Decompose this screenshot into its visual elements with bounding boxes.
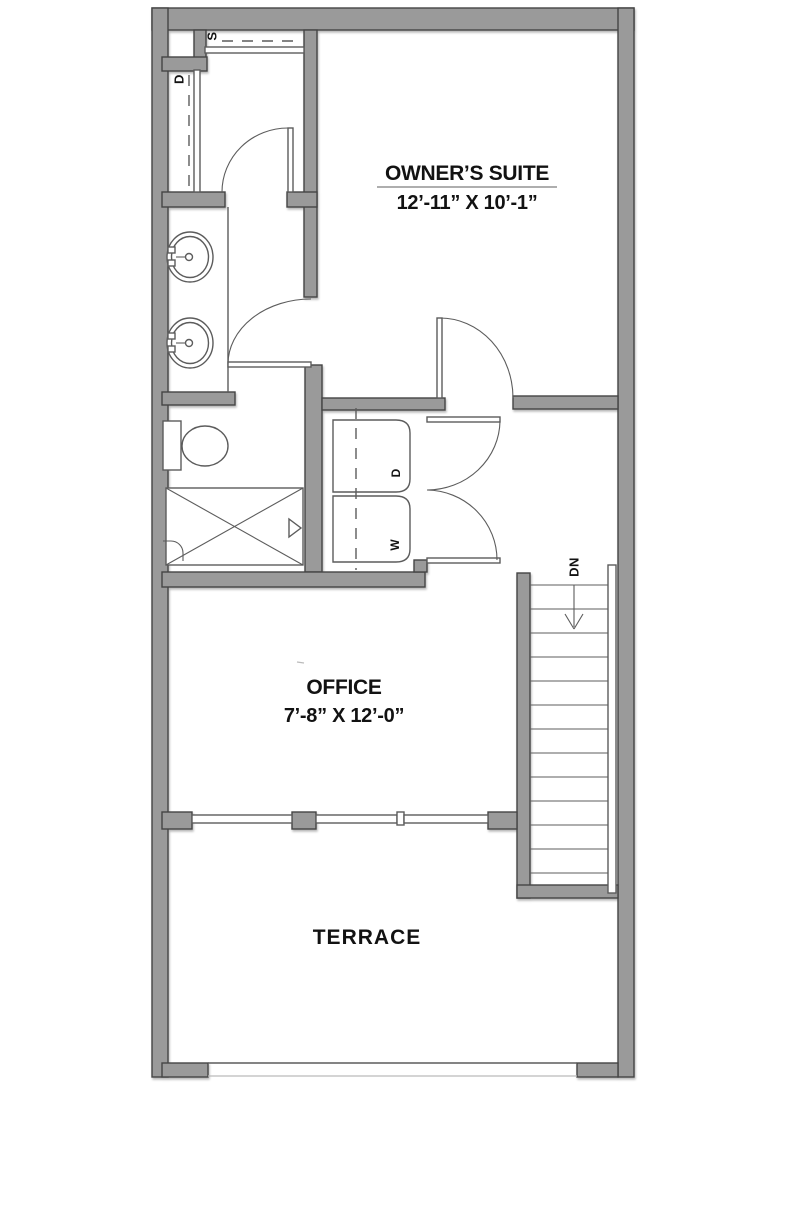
sink-drain-icon — [186, 254, 193, 261]
owners-suite-dimensions: 12’-11” X 10’-1” — [397, 192, 538, 214]
office-dimensions: 7’-8” X 12’-0” — [284, 705, 404, 727]
wall-right — [618, 8, 634, 1077]
wall-suite-entry-right — [513, 396, 618, 409]
owners-suite: OWNER’S SUITE 12’-11” X 10’-1” — [377, 162, 557, 398]
bath-door-leaf — [228, 362, 311, 367]
wall-toilet-privacy — [162, 392, 235, 405]
wall-window-stub-left — [162, 812, 192, 829]
wall-top — [152, 8, 634, 30]
terrace: TERRACE — [208, 926, 577, 1076]
closet-linen-label: D — [171, 74, 186, 84]
closets: S D — [171, 31, 304, 192]
closet-shelf-label: S — [204, 31, 219, 40]
suite-door-leaf — [437, 318, 442, 398]
floor-plan: S D — [0, 0, 785, 1210]
stairs-down-label: DN — [566, 557, 581, 577]
toilet-tank — [163, 421, 181, 470]
wall-niche-horizontal — [162, 57, 207, 71]
floor-plan-drawing: S D — [0, 0, 785, 1210]
laundry-door-bottom-leaf — [427, 558, 500, 563]
stair-stringer — [608, 565, 616, 893]
wall-stair-bottom — [517, 885, 618, 898]
office-name: OFFICE — [306, 676, 381, 699]
suite-door-swing-arc — [440, 318, 513, 398]
window-glazing-3 — [404, 815, 488, 823]
stairs: DN — [530, 557, 616, 893]
window-mullion — [397, 812, 404, 825]
closet-door-swing-arc — [222, 128, 288, 192]
wall-laundry-post — [414, 560, 427, 572]
wall-window-post-center — [292, 812, 316, 829]
wall-terrace-stub-right — [577, 1063, 618, 1077]
sink-1 — [167, 232, 213, 282]
stairs-down-arrow-icon — [565, 585, 583, 629]
sink-2 — [167, 318, 213, 368]
washer-label: W — [388, 539, 402, 551]
window-glazing-1 — [192, 815, 292, 823]
office: OFFICE 7’-8” X 12’-0” — [192, 662, 488, 825]
laundry-door-top-leaf — [427, 417, 500, 422]
owners-suite-name: OWNER’S SUITE — [385, 162, 549, 185]
closet-door-leaf — [288, 128, 293, 192]
laundry-closet: D W — [333, 408, 500, 570]
wall-terrace-stub-left — [162, 1063, 208, 1077]
shower — [163, 488, 303, 565]
office-tick-mark — [297, 662, 304, 663]
laundry-door-bottom-arc — [427, 490, 497, 560]
dryer-unit — [333, 420, 410, 492]
wall-closet-bottom — [162, 192, 225, 207]
wall-window-stub-right — [488, 812, 517, 829]
wall-bath-right-lower — [305, 365, 322, 572]
toilet-bowl — [182, 426, 228, 466]
window-wall — [192, 812, 488, 825]
wall-stair-left — [517, 573, 530, 898]
laundry-door-top-arc — [427, 421, 500, 490]
closet-shelf — [205, 47, 304, 53]
wall-closet-door-post — [287, 192, 317, 207]
bathroom — [163, 207, 311, 565]
terrace-name: TERRACE — [313, 926, 422, 949]
wall-bath-bottom — [162, 572, 425, 587]
linen-shelf — [194, 70, 200, 192]
wall-laundry-top — [322, 398, 445, 410]
dryer-label: D — [389, 468, 403, 477]
window-glazing-2 — [316, 815, 397, 823]
wall-closet-right — [304, 30, 317, 297]
washer-unit — [333, 496, 410, 562]
bath-door-swing-arc — [228, 299, 311, 364]
toilet — [163, 421, 228, 470]
sink-drain-icon — [186, 340, 193, 347]
